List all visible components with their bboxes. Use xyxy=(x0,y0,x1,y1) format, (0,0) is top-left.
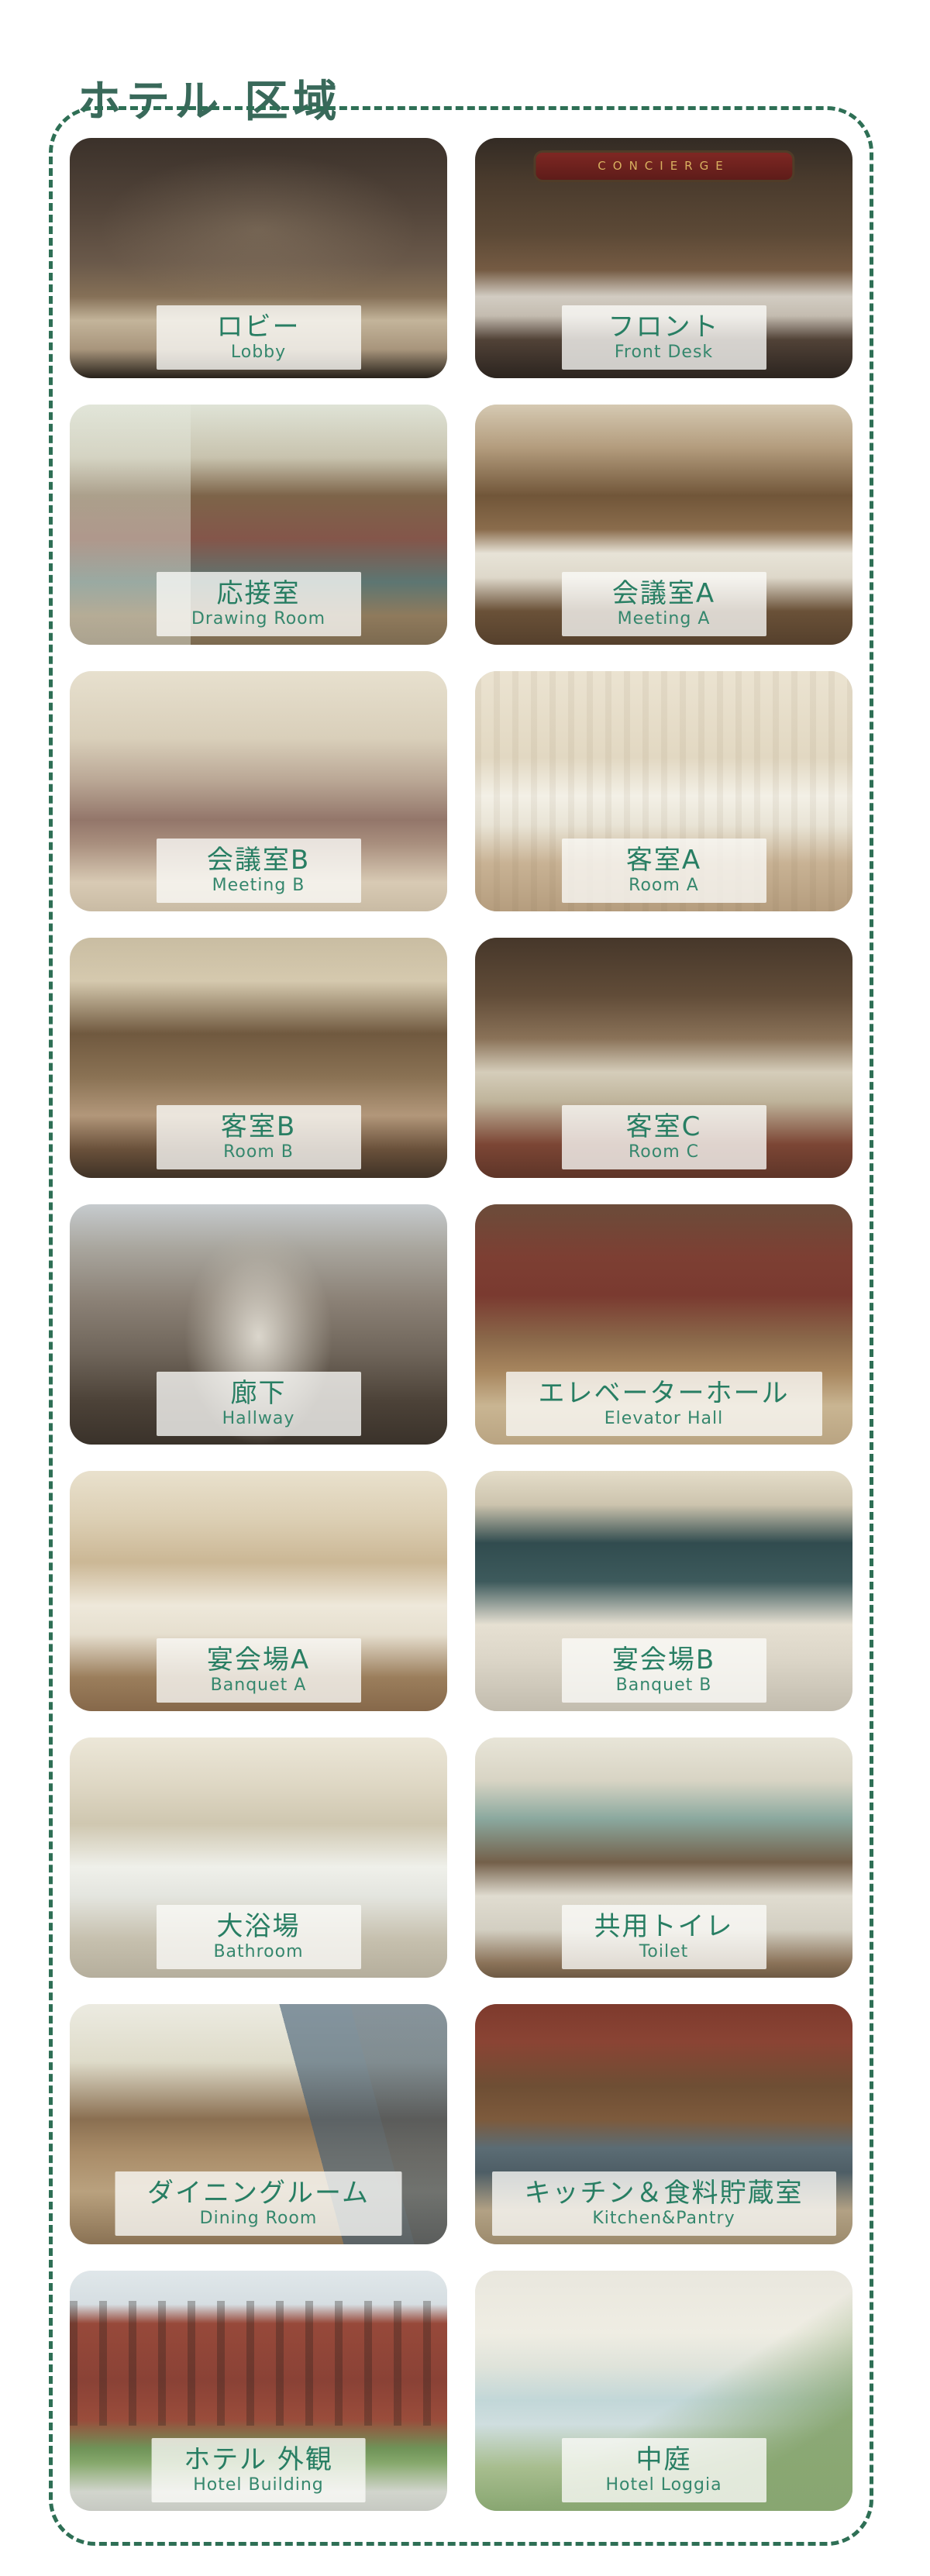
area-name-en: Room B xyxy=(189,1142,329,1162)
area-card-hotel-building: ホテル 外観 Hotel Building xyxy=(70,2271,447,2511)
area-card-elevator-hall: エレベーターホール Elevator Hall xyxy=(475,1204,852,1445)
area-name-jp: 大浴場 xyxy=(189,1911,329,1942)
area-name-jp: 会議室A xyxy=(594,578,734,609)
area-card-hallway: 廊下 Hallway xyxy=(70,1204,447,1445)
area-name-jp: 共用トイレ xyxy=(594,1911,734,1942)
area-name-en: Bathroom xyxy=(189,1942,329,1962)
area-name-jp: エレベーターホール xyxy=(539,1378,790,1409)
area-label: 大浴場 Bathroom xyxy=(157,1905,361,1969)
area-label: フロント Front Desk xyxy=(562,305,766,370)
concierge-sign: CONCIERGE xyxy=(533,150,794,182)
area-name-jp: 客室B xyxy=(189,1111,329,1142)
area-label: 廊下 Hallway xyxy=(157,1372,361,1436)
area-label: 客室C Room C xyxy=(562,1105,766,1169)
area-grid: ロビー Lobby CONCIERGE フロント Front Desk 応接室 … xyxy=(74,138,849,2511)
area-label: 客室A Room A xyxy=(562,839,766,903)
area-card-room-b: 客室B Room B xyxy=(70,938,447,1178)
area-name-en: Hallway xyxy=(189,1409,329,1429)
area-card-lobby: ロビー Lobby xyxy=(70,138,447,378)
area-label: ダイニングルーム Dining Room xyxy=(115,2171,402,2236)
area-card-room-a: 客室A Room A xyxy=(475,671,852,911)
area-label: 宴会場B Banquet B xyxy=(562,1638,766,1703)
area-name-en: Kitchen&Pantry xyxy=(525,2209,804,2229)
area-name-en: Hotel Loggia xyxy=(594,2475,734,2495)
area-name-jp: フロント xyxy=(594,312,734,343)
area-name-jp: 客室C xyxy=(594,1111,734,1142)
area-name-jp: ホテル 外観 xyxy=(184,2444,333,2475)
area-card-toilet: 共用トイレ Toilet xyxy=(475,1737,852,1978)
area-card-hotel-loggia: 中庭 Hotel Loggia xyxy=(475,2271,852,2511)
area-name-jp: 応接室 xyxy=(189,578,329,609)
area-name-en: Dining Room xyxy=(147,2209,370,2229)
area-label: 応接室 Drawing Room xyxy=(157,572,361,636)
area-card-dining-room: ダイニングルーム Dining Room xyxy=(70,2004,447,2244)
area-label: ホテル 外観 Hotel Building xyxy=(151,2438,366,2502)
area-name-jp: 廊下 xyxy=(189,1378,329,1409)
area-name-jp: ロビー xyxy=(189,312,329,343)
area-name-jp: ダイニングルーム xyxy=(147,2178,370,2209)
area-name-en: Meeting A xyxy=(594,609,734,629)
area-label: 会議室B Meeting B xyxy=(157,839,361,903)
area-card-meeting-b: 会議室B Meeting B xyxy=(70,671,447,911)
area-label: 中庭 Hotel Loggia xyxy=(562,2438,766,2502)
area-name-en: Room A xyxy=(594,876,734,896)
area-name-en: Room C xyxy=(594,1142,734,1162)
area-name-en: Front Desk xyxy=(594,343,734,363)
area-card-room-c: 客室C Room C xyxy=(475,938,852,1178)
area-name-jp: 宴会場B xyxy=(594,1644,734,1675)
area-label: 客室B Room B xyxy=(157,1105,361,1169)
area-card-drawing-room: 応接室 Drawing Room xyxy=(70,405,447,645)
area-name-jp: 会議室B xyxy=(189,845,329,876)
area-label: ロビー Lobby xyxy=(157,305,361,370)
area-label: 宴会場A Banquet A xyxy=(157,1638,361,1703)
area-name-jp: 中庭 xyxy=(594,2444,734,2475)
area-label: 共用トイレ Toilet xyxy=(562,1905,766,1969)
area-name-jp: キッチン＆食料貯蔵室 xyxy=(525,2178,804,2209)
area-name-en: Hotel Building xyxy=(184,2475,333,2495)
area-label: キッチン＆食料貯蔵室 Kitchen&Pantry xyxy=(492,2171,836,2236)
area-name-en: Elevator Hall xyxy=(539,1409,790,1429)
area-label: 会議室A Meeting A xyxy=(562,572,766,636)
area-label: エレベーターホール Elevator Hall xyxy=(506,1372,822,1436)
area-card-kitchen-pantry: キッチン＆食料貯蔵室 Kitchen&Pantry xyxy=(475,2004,852,2244)
area-name-en: Meeting B xyxy=(189,876,329,896)
area-name-jp: 宴会場A xyxy=(189,1644,329,1675)
area-name-en: Toilet xyxy=(594,1942,734,1962)
area-card-meeting-a: 会議室A Meeting A xyxy=(475,405,852,645)
hotel-area-sheet: ロビー Lobby CONCIERGE フロント Front Desk 応接室 … xyxy=(49,106,873,2546)
area-card-banquet-a: 宴会場A Banquet A xyxy=(70,1471,447,1711)
area-name-en: Lobby xyxy=(189,343,329,363)
area-name-jp: 客室A xyxy=(594,845,734,876)
area-name-en: Banquet B xyxy=(594,1675,734,1696)
area-card-front-desk: CONCIERGE フロント Front Desk xyxy=(475,138,852,378)
area-card-banquet-b: 宴会場B Banquet B xyxy=(475,1471,852,1711)
area-name-en: Banquet A xyxy=(189,1675,329,1696)
area-name-en: Drawing Room xyxy=(189,609,329,629)
area-card-bathroom: 大浴場 Bathroom xyxy=(70,1737,447,1978)
